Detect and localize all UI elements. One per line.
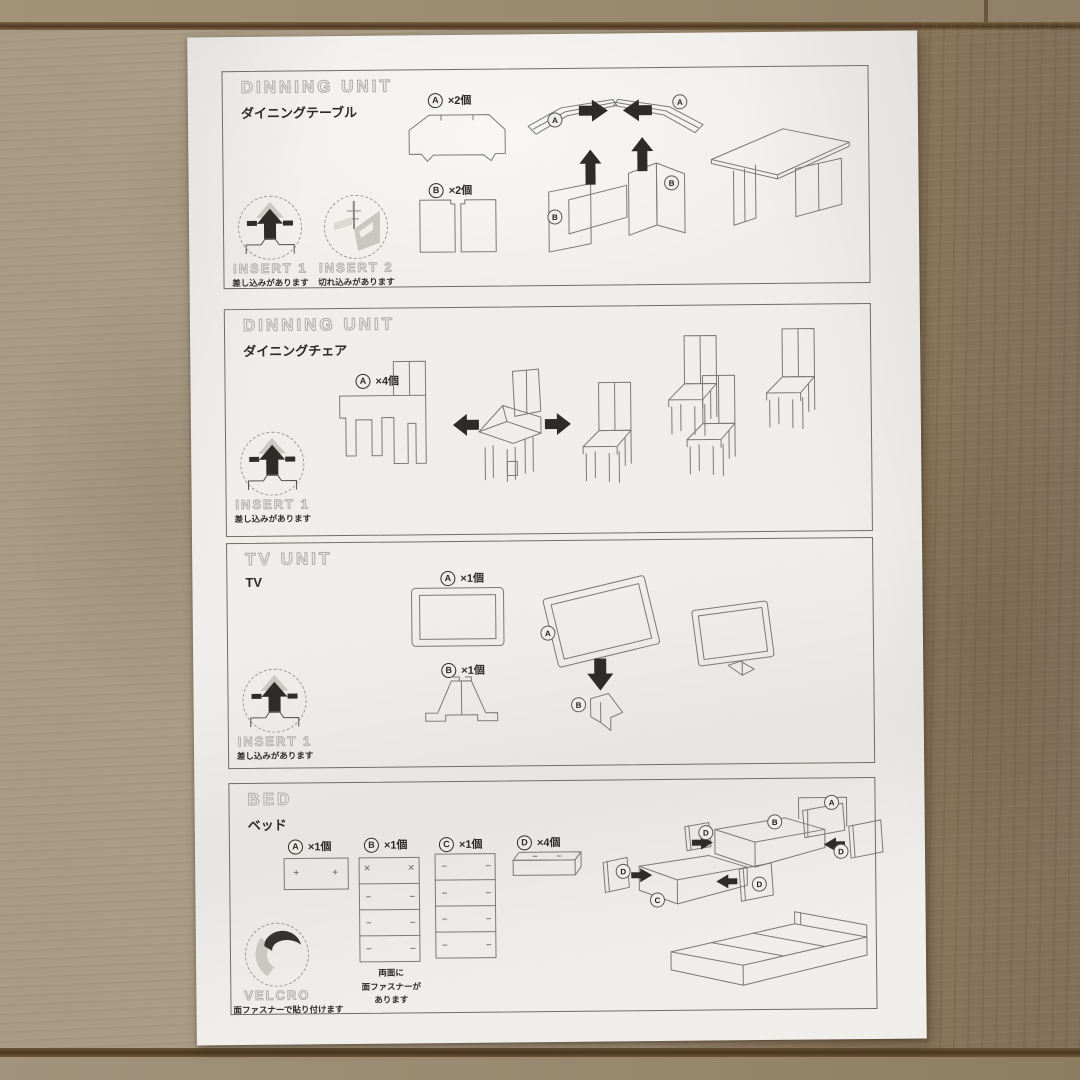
bed-fastener-note: 両面に 面ファスナーが あります (351, 966, 431, 1008)
tv-assembly-drawing: A B (537, 552, 679, 745)
part-letter-circle: A (428, 93, 443, 108)
svg-text:B: B (576, 701, 582, 710)
instruction-sheet: DINNING UNIT ダイニングテーブル A ×2個 B ×2個 A (187, 31, 927, 1046)
insert1-label: INSERT 1 (229, 496, 317, 512)
chair-fold-step-drawing (450, 369, 573, 482)
insert1-label: INSERT 1 (231, 733, 319, 749)
part-qty: ×1個 (459, 836, 483, 852)
svg-text:A: A (829, 798, 835, 807)
bed-part-d-drawing (507, 848, 583, 881)
bed-part-a-drawing (283, 857, 349, 892)
section-dining-table: DINNING UNIT ダイニングテーブル A ×2個 B ×2個 A (222, 65, 871, 289)
velcro-note: 面ファスナーで貼り付けます (233, 1003, 321, 1016)
insert1-badge: INSERT 1 差し込みがあります (228, 431, 317, 525)
svg-text:A: A (677, 98, 683, 107)
part-qty: ×1個 (308, 838, 332, 854)
insert1-label: INSERT 1 (226, 260, 314, 276)
section-tv: TV UNIT TV A ×1個 B ×1個 A B (226, 537, 875, 769)
part-qty: ×1個 (460, 570, 484, 586)
chair-part-drawing (335, 357, 451, 482)
insert1-badge: INSERT 1 差し込みがあります (230, 668, 319, 762)
insert1-icon (240, 431, 305, 496)
section-title: TV UNIT (245, 549, 332, 570)
part-label-b: B ×1個 (364, 836, 408, 852)
tv-screen-part-drawing (409, 585, 506, 650)
section-title: DINNING UNIT (243, 315, 395, 336)
tabletop-part-drawing (401, 107, 510, 174)
insert1-icon (242, 668, 307, 733)
section-subtitle: TV (245, 575, 262, 590)
section-title: DINNING UNIT (241, 77, 393, 98)
finished-bed-drawing (661, 906, 894, 992)
part-letter-circle: B (364, 837, 379, 852)
insert1-badge: INSERT 1 差し込みがあります (226, 195, 315, 289)
insert2-note: 切れ込みがあります (312, 275, 400, 288)
svg-text:D: D (620, 867, 626, 876)
insert2-label: INSERT 2 (312, 259, 400, 275)
floor-joint-bottom (0, 1048, 1080, 1057)
section-subtitle: ベッド (248, 815, 287, 834)
svg-text:D: D (756, 880, 762, 889)
part-qty: ×1個 (384, 836, 408, 852)
part-label-c: C ×1個 (439, 836, 483, 852)
svg-text:C: C (655, 896, 661, 905)
section-subtitle: ダイニングチェア (243, 340, 347, 360)
table-leg-step-drawing: B B (538, 133, 704, 260)
part-qty: ×2個 (448, 92, 472, 108)
insert1-note: 差し込みがあります (229, 512, 317, 525)
part-label-a: A ×1個 (440, 570, 484, 586)
bed-part-b-drawing (358, 856, 421, 963)
velcro-label: VELCRO (233, 987, 321, 1003)
insert1-note: 差し込みがあります (231, 749, 319, 762)
svg-text:B: B (772, 818, 778, 827)
section-subtitle: ダイニングテーブル (241, 102, 357, 122)
part-label-a: A ×1個 (288, 838, 332, 854)
floor-plank-bottom (0, 1057, 1080, 1080)
svg-text:B: B (552, 213, 558, 222)
section-dining-chair: DINNING UNIT ダイニングチェア A ×4個 (224, 303, 873, 537)
section-bed: BED ベッド A ×1個 B ×1個 C ×1個 D (228, 777, 877, 1015)
part-letter-circle: A (440, 570, 455, 585)
part-letter-circle: A (288, 839, 303, 854)
svg-text:B: B (669, 179, 675, 188)
part-label-a: A ×2個 (428, 92, 472, 108)
insert2-icon (324, 195, 389, 260)
part-letter-circle: C (439, 837, 454, 852)
finished-table-drawing (703, 116, 856, 235)
insert1-icon (238, 195, 303, 260)
bed-part-c-drawing (434, 853, 497, 960)
svg-text:A: A (545, 629, 551, 638)
svg-text:D: D (703, 829, 709, 838)
velcro-icon (245, 922, 310, 987)
svg-text:A: A (552, 116, 558, 125)
section-title: BED (247, 790, 292, 810)
insert1-note: 差し込みがあります (226, 276, 314, 289)
svg-text:D: D (838, 847, 844, 856)
tv-stand-part-drawing (421, 675, 501, 726)
floor-plank-top (0, 0, 1080, 24)
velcro-badge: VELCRO 面ファスナーで貼り付けます (233, 922, 322, 1016)
finished-tv-drawing (690, 593, 783, 690)
floor-joint-vertical (984, 0, 988, 24)
table-leg-part-drawing (418, 192, 499, 257)
finished-chairs-drawing (572, 326, 834, 498)
insert2-badge: INSERT 2 切れ込みがあります (312, 194, 401, 288)
floor-grain-right (915, 22, 1080, 1058)
